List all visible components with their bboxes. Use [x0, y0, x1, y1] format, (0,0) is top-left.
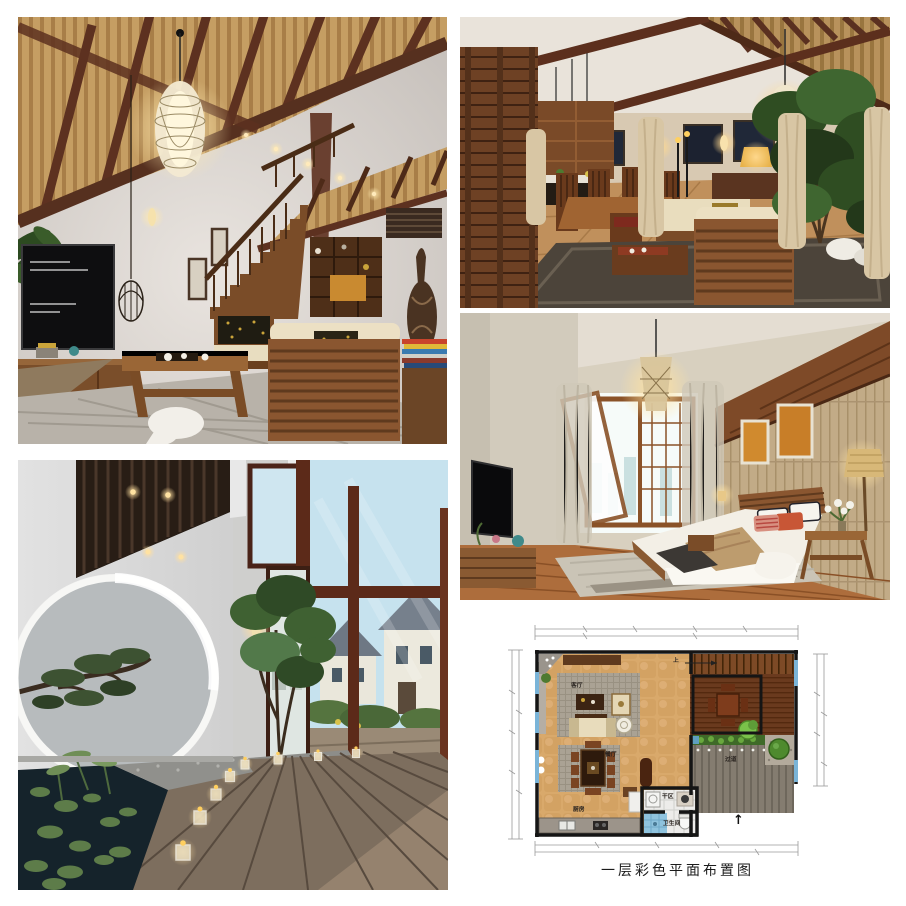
display-shelf-symbol [640, 758, 652, 787]
label-stairs-up: 上 [673, 658, 679, 664]
panel-great-room-dining [460, 17, 890, 308]
panel-bedroom [460, 313, 890, 600]
ornament [69, 346, 79, 356]
kitchen-counter [539, 818, 640, 833]
tree-symbol [769, 739, 789, 759]
clerestory-window [250, 466, 300, 566]
panel-floor-plan: 客厅 餐厅 厨房 干区 卫生间 过道 上 ↑ 一层彩色平面布置图 [505, 622, 850, 884]
plant-symbol [748, 720, 758, 730]
bedroom-scene [460, 313, 890, 600]
stool [688, 535, 714, 551]
label-bathroom: 卫生间 [663, 821, 680, 827]
great-room-scene [460, 17, 890, 308]
stairs [691, 654, 794, 674]
console-table [712, 173, 778, 199]
book-stack [402, 339, 447, 368]
tv-screen [472, 461, 512, 537]
bookshelf [310, 237, 382, 317]
plant-symbol [541, 673, 551, 683]
panel-living-room-loft [18, 17, 447, 444]
label-dry-area: 干区 [662, 794, 674, 800]
window-louvre [386, 208, 442, 238]
fridge-symbol [629, 792, 641, 812]
wall-art [189, 259, 206, 299]
courtyard-scene [18, 460, 448, 890]
label-corridor: 过道 [725, 757, 737, 763]
floor-plan-caption: 一层彩色平面布置图 [505, 860, 850, 880]
tea-table-symbol [717, 694, 739, 716]
slatted-sofa [268, 323, 400, 441]
wall-art [778, 405, 812, 457]
label-dining-room: 餐厅 [605, 752, 617, 758]
orange-pillow [775, 512, 803, 531]
label-living-room: 客厅 [571, 683, 583, 689]
tv-screen [22, 245, 114, 349]
tv-console-symbol [563, 655, 621, 665]
wall-sconce [148, 208, 156, 226]
label-kitchen: 厨房 [573, 807, 585, 813]
entry-arrow: ↑ [733, 814, 744, 827]
wall-art [742, 421, 768, 463]
panel-courtyard-corridor [18, 460, 448, 890]
collage-canvas: 客厅 餐厅 厨房 干区 卫生间 过道 上 ↑ 一层彩色平面布置图 [0, 0, 906, 906]
living-room-loft-scene [18, 17, 447, 444]
table-lamp [718, 491, 726, 501]
